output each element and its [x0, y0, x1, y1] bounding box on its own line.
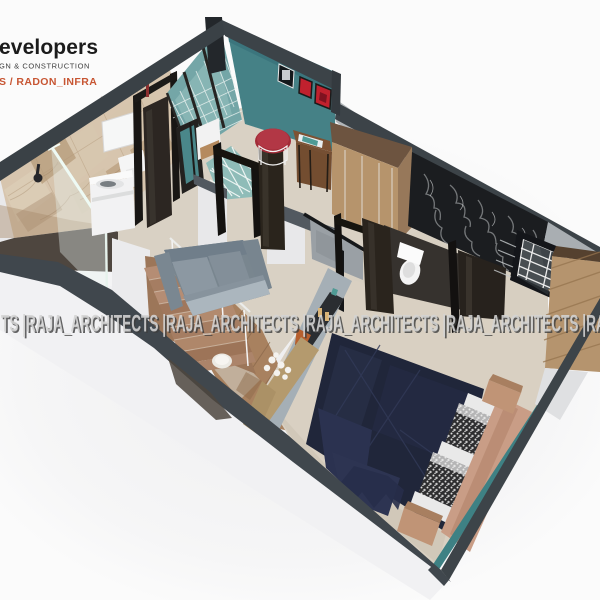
svg-text:evelopers: evelopers	[0, 36, 98, 59]
svg-text:TS |RAJA_ARCHITECTS |RAJA_ARCH: TS |RAJA_ARCHITECTS |RAJA_ARCHITECTS |RA…	[1, 311, 600, 338]
svg-text:S / RADON_INFRA: S / RADON_INFRA	[0, 76, 97, 88]
svg-text:GN & CONSTRUCTION: GN & CONSTRUCTION	[0, 62, 90, 71]
